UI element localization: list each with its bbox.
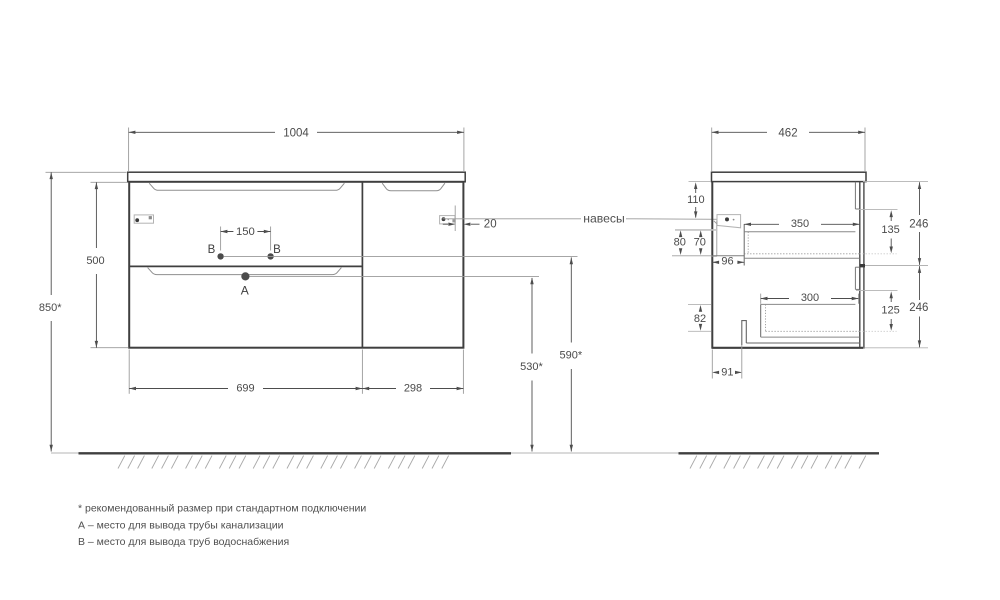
svg-text:А – место для вывода трубы кан: А – место для вывода трубы канализации xyxy=(78,520,284,532)
svg-text:530*: 530* xyxy=(520,361,543,373)
svg-text:91: 91 xyxy=(721,366,733,378)
svg-text:110: 110 xyxy=(687,194,705,206)
svg-text:500: 500 xyxy=(86,255,104,267)
svg-text:навесы: навесы xyxy=(583,212,624,226)
svg-text:298: 298 xyxy=(404,383,422,395)
svg-text:* рекомендованный размер при с: * рекомендованный размер при стандартном… xyxy=(78,502,366,514)
svg-text:70: 70 xyxy=(694,237,706,249)
svg-text:350: 350 xyxy=(791,218,809,230)
svg-text:82: 82 xyxy=(694,313,706,325)
svg-text:150: 150 xyxy=(236,226,255,238)
svg-text:699: 699 xyxy=(236,383,254,395)
svg-text:80: 80 xyxy=(674,237,686,249)
svg-text:96: 96 xyxy=(721,256,733,268)
svg-text:B: B xyxy=(273,244,281,256)
svg-text:B: B xyxy=(208,244,216,256)
svg-text:1004: 1004 xyxy=(283,127,309,139)
svg-text:125: 125 xyxy=(881,305,899,317)
svg-text:A: A xyxy=(241,284,249,298)
svg-text:В – место для вывода труб водо: В – место для вывода труб водоснабжения xyxy=(78,536,289,548)
svg-text:300: 300 xyxy=(801,292,819,304)
svg-text:246: 246 xyxy=(909,219,928,231)
svg-text:590*: 590* xyxy=(559,350,582,362)
svg-text:20: 20 xyxy=(484,218,497,230)
svg-text:246: 246 xyxy=(909,302,928,314)
svg-text:462: 462 xyxy=(778,127,797,139)
svg-text:850*: 850* xyxy=(39,302,62,314)
svg-text:135: 135 xyxy=(881,224,899,236)
